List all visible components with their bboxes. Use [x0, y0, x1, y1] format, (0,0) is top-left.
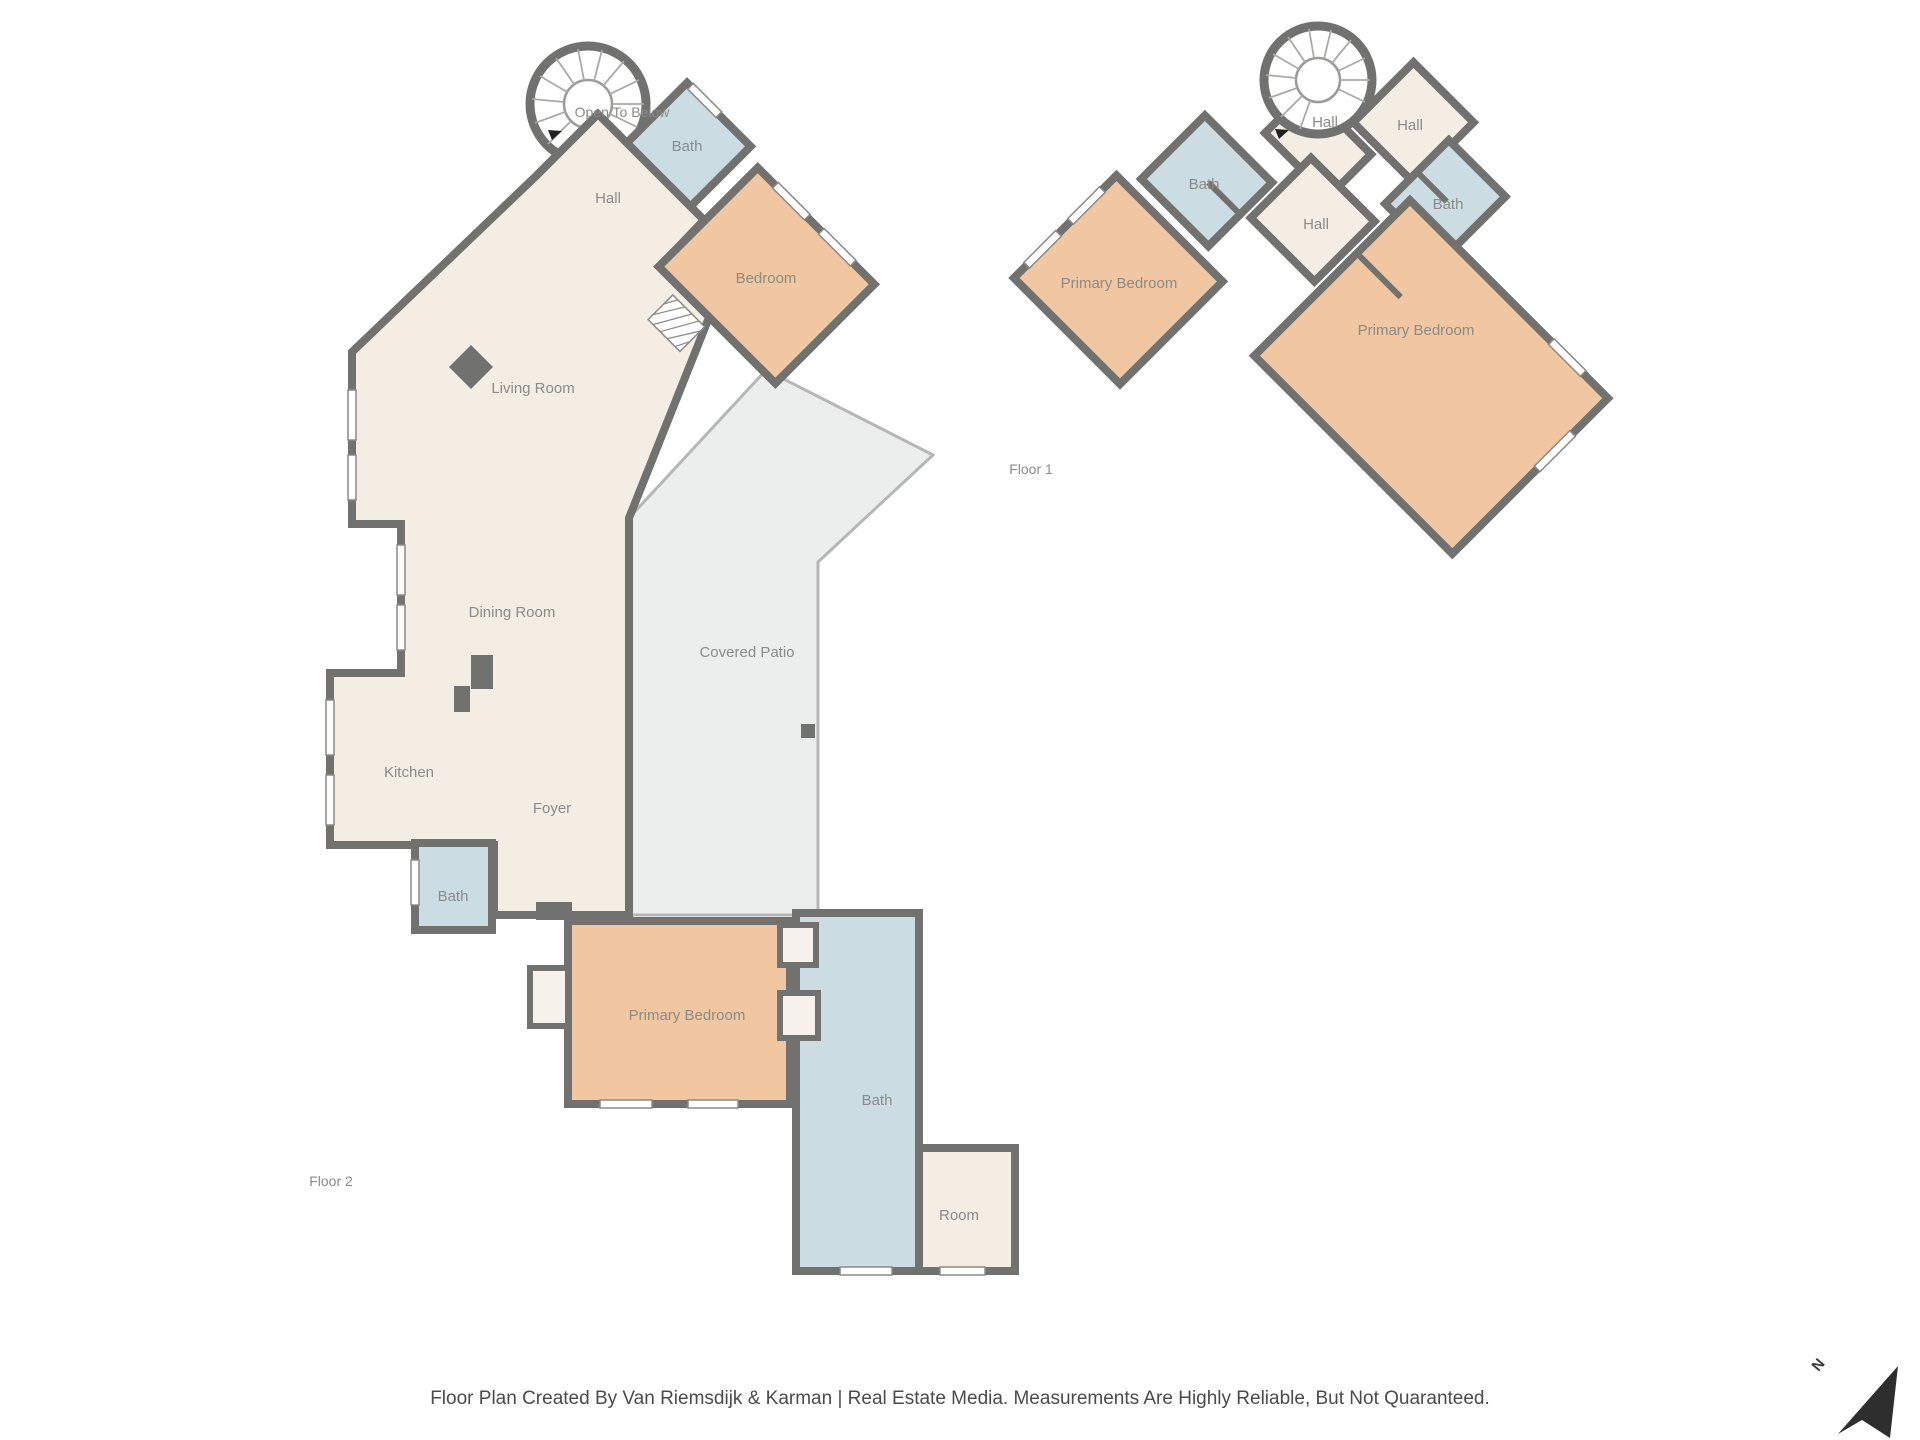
- window: [397, 545, 405, 595]
- label-primary-bedroom-floor2: Primary Bedroom: [629, 1007, 746, 1024]
- footer-credit: Floor Plan Created By Van Riemsdijk & Ka…: [430, 1388, 1490, 1409]
- label-living-room: Living Room: [491, 380, 574, 397]
- foyer-wall-stub: [454, 686, 470, 712]
- dining-room-column: [471, 655, 493, 689]
- label-bath-top: Bath: [672, 138, 703, 155]
- label-bath-mid: Bath: [438, 888, 469, 905]
- label-bath-left-floor1: Bath: [1189, 176, 1220, 193]
- window: [348, 390, 356, 440]
- closet-niche: [530, 968, 568, 1026]
- north-label: N: [1809, 1355, 1829, 1374]
- north-compass: N: [1809, 1355, 1898, 1438]
- label-foyer: Foyer: [533, 800, 571, 817]
- label-bedroom: Bedroom: [736, 270, 797, 287]
- label-primary-bedroom-right: Primary Bedroom: [1358, 322, 1475, 339]
- room-bath-mid: [415, 843, 492, 930]
- north-arrow-icon: [1838, 1366, 1898, 1438]
- closet-niche: [780, 993, 818, 1038]
- window: [840, 1267, 892, 1275]
- window: [940, 1267, 985, 1275]
- label-hall-floor2: Hall: [595, 190, 621, 207]
- window: [326, 775, 334, 825]
- label-open-to-below: Open To Below: [575, 104, 671, 120]
- label-bath-right-floor1: Bath: [1433, 196, 1464, 213]
- window: [397, 605, 405, 650]
- window: [348, 455, 356, 500]
- label-hall-center: Hall: [1303, 216, 1329, 233]
- floor-plan-page: Open To Below Hall Bath Bedroom Living R…: [0, 0, 1920, 1440]
- closet-niche: [780, 925, 816, 965]
- label-floor2: Floor 2: [309, 1173, 353, 1189]
- floor2-plan: Open To Below Hall Bath Bedroom Living R…: [309, 46, 1015, 1275]
- patio-column: [801, 724, 815, 738]
- label-kitchen: Kitchen: [384, 764, 434, 781]
- window: [411, 860, 419, 905]
- room-covered-patio: [629, 370, 933, 915]
- label-dining-room: Dining Room: [469, 604, 556, 621]
- window: [688, 1100, 738, 1108]
- label-hall-upper-right: Hall: [1397, 117, 1423, 134]
- label-covered-patio: Covered Patio: [699, 644, 794, 661]
- window: [326, 700, 334, 755]
- stair-turret-floor1-core: [1296, 58, 1340, 102]
- label-floor1: Floor 1: [1009, 461, 1053, 477]
- label-room: Room: [939, 1207, 979, 1224]
- label-primary-bedroom-left: Primary Bedroom: [1061, 275, 1178, 292]
- window: [600, 1100, 652, 1108]
- floor1-plan: Hall Hall Bath Hall Bath Primary Bedroom…: [1009, 0, 1681, 638]
- label-bath-lower: Bath: [862, 1092, 893, 1109]
- floor-plan-drawing: Open To Below Hall Bath Bedroom Living R…: [0, 0, 1920, 1440]
- label-hall-upper-left: Hall: [1312, 114, 1338, 131]
